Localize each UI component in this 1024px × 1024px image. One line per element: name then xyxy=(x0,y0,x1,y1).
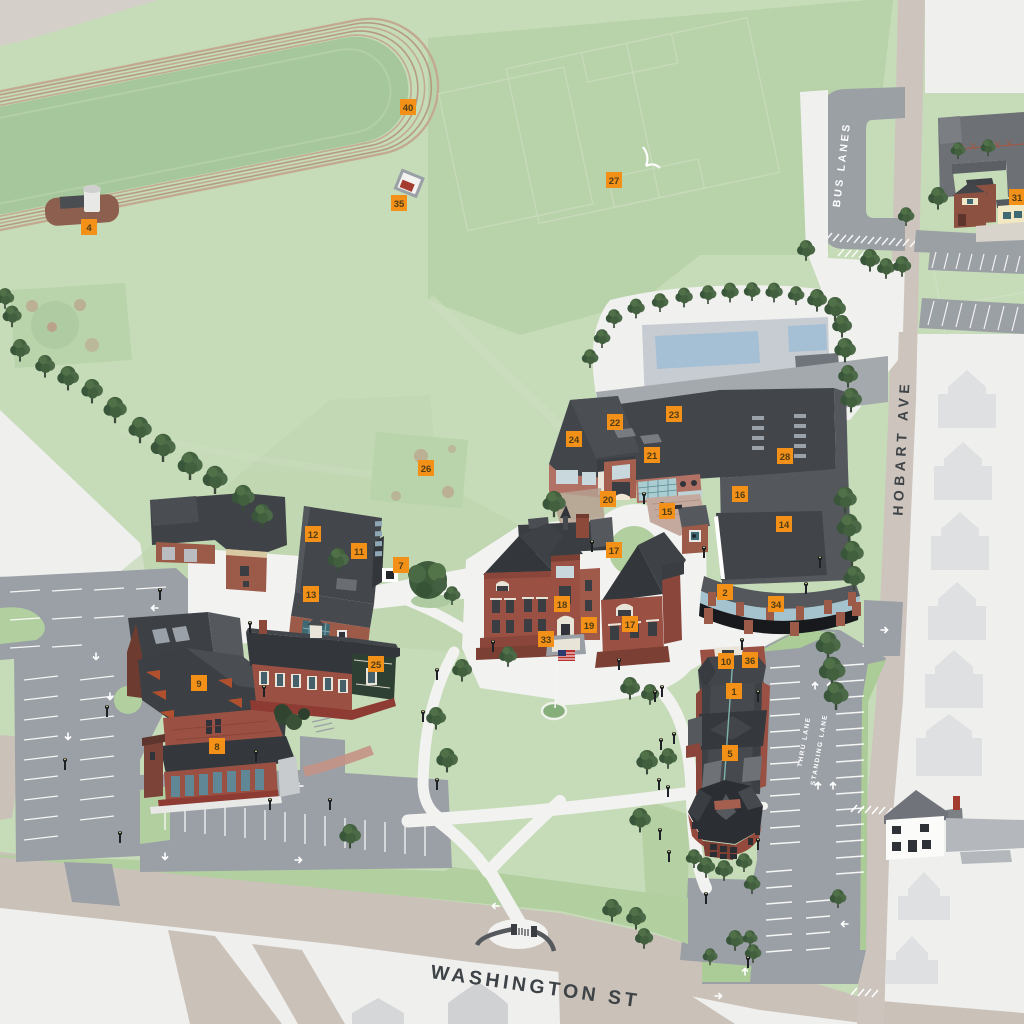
svg-text:1: 1 xyxy=(731,687,737,698)
svg-text:31: 31 xyxy=(1012,193,1023,204)
svg-text:28: 28 xyxy=(780,452,791,463)
svg-text:15: 15 xyxy=(662,507,673,518)
svg-text:36: 36 xyxy=(745,656,756,667)
svg-text:35: 35 xyxy=(394,199,405,210)
svg-text:17: 17 xyxy=(625,620,636,631)
svg-text:20: 20 xyxy=(603,495,614,506)
svg-text:19: 19 xyxy=(584,621,595,632)
svg-text:34: 34 xyxy=(771,600,782,611)
svg-text:25: 25 xyxy=(371,660,382,671)
svg-text:24: 24 xyxy=(569,435,580,446)
svg-text:16: 16 xyxy=(735,490,746,501)
svg-text:40: 40 xyxy=(403,103,414,114)
svg-text:13: 13 xyxy=(306,590,317,601)
svg-text:22: 22 xyxy=(610,418,621,429)
svg-text:7: 7 xyxy=(398,561,403,572)
svg-text:33: 33 xyxy=(541,635,552,646)
svg-text:14: 14 xyxy=(779,520,790,531)
svg-text:12: 12 xyxy=(308,530,319,541)
svg-text:9: 9 xyxy=(196,679,201,690)
svg-text:17: 17 xyxy=(609,546,620,557)
svg-text:4: 4 xyxy=(86,223,92,234)
svg-text:27: 27 xyxy=(609,176,620,187)
svg-text:26: 26 xyxy=(421,464,432,475)
svg-text:21: 21 xyxy=(647,451,658,462)
svg-text:23: 23 xyxy=(669,410,680,421)
svg-text:2: 2 xyxy=(722,588,727,599)
svg-text:5: 5 xyxy=(727,749,733,760)
svg-text:8: 8 xyxy=(214,742,219,753)
svg-text:18: 18 xyxy=(557,600,568,611)
svg-text:10: 10 xyxy=(721,657,732,668)
svg-text:11: 11 xyxy=(354,547,365,558)
